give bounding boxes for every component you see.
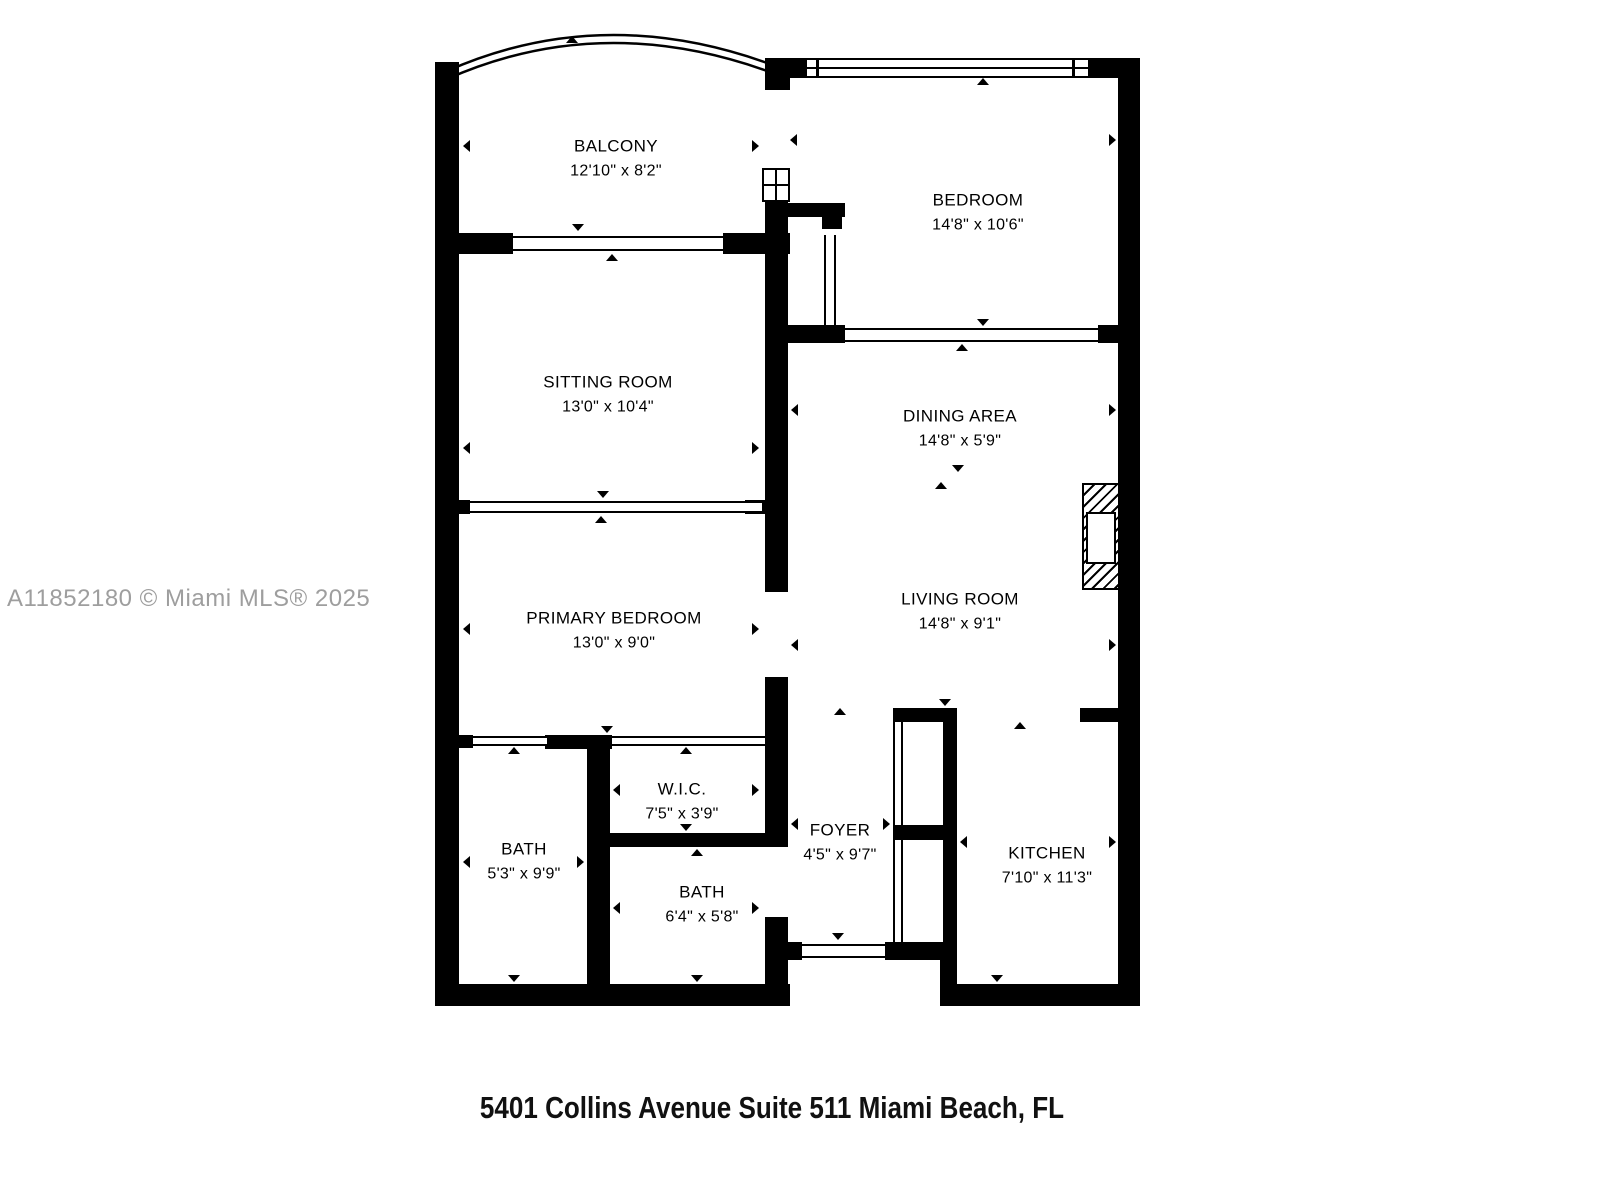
dimension-arrow-icon <box>935 482 947 489</box>
room-label-dining-area: DINING AREA 14'8" x 5'9" <box>903 403 1017 453</box>
room-dims: 12'10" x 8'2" <box>570 159 662 183</box>
kitchen-bottom-wall <box>940 984 1140 1006</box>
dimension-arrow-icon <box>752 784 759 796</box>
dimension-arrow-icon <box>463 623 470 635</box>
dimension-arrow-icon <box>752 902 759 914</box>
address-caption: 5401 Collins Avenue Suite 511 Miami Beac… <box>480 1090 1064 1126</box>
divider-stub-left <box>435 500 470 514</box>
bedroom-window-wall-right <box>1088 58 1140 78</box>
room-dims: 6'4" x 5'8" <box>665 905 738 929</box>
bedroom-closet-slider <box>824 235 836 325</box>
dimension-arrow-icon <box>791 639 798 651</box>
room-name: W.I.C. <box>645 776 718 802</box>
dimension-arrow-icon <box>939 699 951 706</box>
dimension-arrow-icon <box>991 975 1003 982</box>
room-label-foyer: FOYER 4'5" x 9'7" <box>803 817 876 867</box>
room-name: DINING AREA <box>903 403 1017 429</box>
center-wall-mid <box>765 677 788 845</box>
floorplan-canvas: BALCONY 12'10" x 8'2" BEDROOM 14'8" x 10… <box>0 0 1600 1200</box>
bedroom-dining-opening <box>845 328 1098 342</box>
bedroom-wall-stub <box>1098 325 1140 343</box>
room-dims: 14'8" x 10'6" <box>932 213 1024 237</box>
wic-wall-bottom <box>610 833 788 847</box>
dimension-arrow-icon <box>606 254 618 261</box>
dimension-arrow-icon <box>752 442 759 454</box>
dimension-arrow-icon <box>752 623 759 635</box>
dimension-arrow-icon <box>834 708 846 715</box>
dimension-arrow-icon <box>832 933 844 940</box>
dimension-arrow-icon <box>508 747 520 754</box>
dimension-arrow-icon <box>463 140 470 152</box>
balcony-slider-door <box>513 236 723 251</box>
room-label-primary-bedroom: PRIMARY BEDROOM 13'0" x 9'0" <box>526 605 701 655</box>
closet-wall-top <box>788 203 845 217</box>
entry-door <box>802 944 885 958</box>
dimension-arrow-icon <box>613 902 620 914</box>
dimension-arrow-icon <box>1109 836 1116 848</box>
mls-watermark: A11852180 © Miami MLS® 2025 <box>7 585 370 613</box>
dimension-arrow-icon <box>977 319 989 326</box>
room-dims: 4'5" x 9'7" <box>803 843 876 867</box>
dimension-arrow-icon <box>508 975 520 982</box>
dimension-arrow-icon <box>691 975 703 982</box>
room-name: SITTING ROOM <box>543 369 672 395</box>
room-dims: 13'0" x 9'0" <box>526 631 701 655</box>
room-dims: 5'3" x 9'9" <box>487 862 560 886</box>
closet-wall-bottom <box>788 325 845 343</box>
room-dims: 14'8" x 5'9" <box>903 429 1017 453</box>
dimension-arrow-icon <box>952 465 964 472</box>
dimension-arrow-icon <box>595 516 607 523</box>
dimension-arrow-icon <box>1014 722 1026 729</box>
dimension-arrow-icon <box>1109 134 1116 146</box>
room-dims: 14'8" x 9'1" <box>901 612 1019 636</box>
dimension-arrow-icon <box>1109 404 1116 416</box>
dimension-arrow-icon <box>960 836 967 848</box>
dimension-arrow-icon <box>790 134 797 146</box>
room-name: BALCONY <box>570 133 662 159</box>
dimension-arrow-icon <box>791 818 798 830</box>
balcony-bedroom-corner <box>765 60 790 90</box>
dimension-arrow-icon <box>883 818 890 830</box>
dimension-arrow-icon <box>956 344 968 351</box>
balcony-arc-railing <box>435 22 795 92</box>
dimension-arrow-icon <box>752 140 759 152</box>
dimension-arrow-icon <box>1109 639 1116 651</box>
dimension-arrow-icon <box>566 36 578 43</box>
dimension-arrow-icon <box>791 404 798 416</box>
closet-wall-stub <box>822 217 842 229</box>
center-wall-lower <box>765 917 788 1006</box>
room-label-balcony: BALCONY 12'10" x 8'2" <box>570 133 662 183</box>
room-label-bedroom: BEDROOM 14'8" x 10'6" <box>932 187 1024 237</box>
dimension-arrow-icon <box>597 491 609 498</box>
dimension-arrow-icon <box>680 747 692 754</box>
dimension-arrow-icon <box>680 824 692 831</box>
room-label-bath-2: BATH 6'4" x 5'8" <box>665 879 738 929</box>
primary-opening-left <box>473 736 547 746</box>
center-wall-upper <box>765 200 788 592</box>
dimension-arrow-icon <box>613 784 620 796</box>
foyer-kitchen-connector <box>940 942 957 1006</box>
room-name: BATH <box>487 836 560 862</box>
room-dims: 13'0" x 10'4" <box>543 395 672 419</box>
room-name: BEDROOM <box>932 187 1024 213</box>
room-dims: 7'10" x 11'3" <box>1002 866 1092 890</box>
kitchen-wall-top <box>1080 708 1140 722</box>
wall-hatch-inset <box>1086 512 1116 564</box>
bedroom-window <box>805 58 1090 78</box>
room-name: PRIMARY BEDROOM <box>526 605 701 631</box>
primary-opening-right <box>612 736 765 746</box>
room-label-living-room: LIVING ROOM 14'8" x 9'1" <box>901 586 1019 636</box>
dimension-arrow-icon <box>577 856 584 868</box>
foyer-closet-door-upper <box>893 722 903 825</box>
outer-wall-left <box>435 62 459 1006</box>
room-label-kitchen: KITCHEN 7'10" x 11'3" <box>1002 840 1092 890</box>
window-divider-icon <box>816 60 819 76</box>
outer-wall-right <box>1118 58 1140 1006</box>
room-name: LIVING ROOM <box>901 586 1019 612</box>
sitting-primary-divider <box>470 501 762 513</box>
dimension-arrow-icon <box>691 849 703 856</box>
room-label-wic: W.I.C. 7'5" x 3'9" <box>645 776 718 826</box>
foyer-closet-door-lower <box>893 840 903 942</box>
room-dims: 7'5" x 3'9" <box>645 802 718 826</box>
foyer-closet-mid <box>893 825 957 840</box>
bath-wall-vertical <box>587 735 610 1006</box>
room-name: FOYER <box>803 817 876 843</box>
room-name: BATH <box>665 879 738 905</box>
primary-wall-stub <box>459 735 473 748</box>
room-label-sitting-room: SITTING ROOM 13'0" x 10'4" <box>543 369 672 419</box>
balcony-wall-left <box>435 233 513 254</box>
floorplan: BALCONY 12'10" x 8'2" BEDROOM 14'8" x 10… <box>0 0 1600 1200</box>
room-name: KITCHEN <box>1002 840 1092 866</box>
dimension-arrow-icon <box>601 726 613 733</box>
dimension-arrow-icon <box>572 224 584 231</box>
dimension-arrow-icon <box>463 442 470 454</box>
dimension-arrow-icon <box>463 856 470 868</box>
window-divider-icon <box>1072 60 1075 76</box>
room-label-bath-1: BATH 5'3" x 9'9" <box>487 836 560 886</box>
balcony-pass-window <box>762 168 790 202</box>
outer-wall-bottom-left <box>435 984 790 1006</box>
dimension-arrow-icon <box>977 78 989 85</box>
